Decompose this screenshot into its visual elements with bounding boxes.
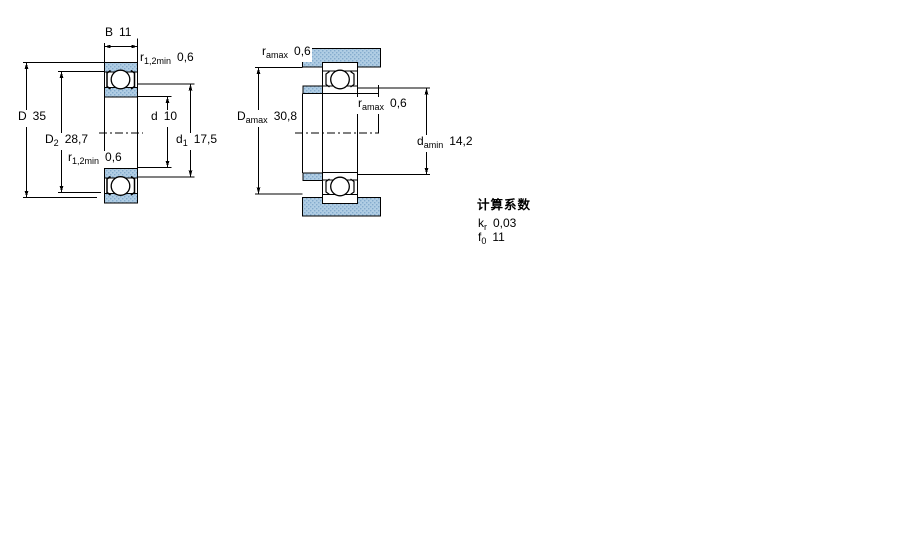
dim-symbol: d	[176, 132, 183, 146]
label-D2: D228,7	[44, 133, 89, 150]
dim-subscript: amin	[424, 140, 444, 150]
dim-symbol: d	[417, 134, 424, 148]
dim-value: 11	[119, 25, 131, 39]
dim-value: 35	[33, 109, 46, 123]
dim-subscript: 1	[183, 138, 188, 148]
dim-value: 30,8	[274, 109, 297, 123]
label-r12min-inner: r1,2min0,6	[67, 151, 123, 168]
label-outer-diameter-D: D35	[17, 110, 47, 127]
factor-subscript: 0	[481, 236, 486, 246]
factor-f0: f011	[477, 231, 506, 248]
dim-subscript: 2	[54, 138, 59, 148]
dim-symbol: D	[45, 132, 54, 146]
dim-symbol: D	[237, 109, 246, 123]
dim-subscript: 1,2min	[72, 156, 99, 166]
label-ramax-middle: ramax0,6	[357, 97, 408, 114]
dim-value: 0,6	[105, 150, 122, 164]
dim-value: 0,6	[177, 50, 194, 64]
label-r12min-top: r1,2min0,6	[139, 51, 195, 68]
dim-subscript: 1,2min	[144, 56, 171, 66]
label-bore-d: d10	[150, 110, 178, 127]
dim-value: 14,2	[449, 134, 472, 148]
label-damin: damin14,2	[416, 135, 474, 152]
label-ramax-top: ramax0,6	[261, 45, 312, 62]
label-width-B: B11	[104, 26, 132, 43]
dim-subscript: amax	[362, 102, 384, 112]
factor-value: 11	[492, 230, 504, 244]
dim-subscript: amax	[246, 115, 268, 125]
dim-value: 28,7	[65, 132, 88, 146]
dim-value: 17,5	[194, 132, 217, 146]
bearing-drawing-canvas: B11 r1,2min0,6 D35 D228,7 d10 d117,5 r1,…	[0, 0, 900, 560]
right-bearing-drawing	[255, 49, 430, 217]
dim-value: 10	[164, 109, 177, 123]
calculation-factors-title: 计算系数	[477, 194, 531, 213]
dim-value: 0,6	[294, 44, 311, 58]
technical-drawing	[0, 0, 900, 560]
dim-symbol: d	[151, 109, 158, 123]
dim-symbol: D	[18, 109, 27, 123]
dim-subscript: amax	[266, 50, 288, 60]
dim-value: 0,6	[390, 96, 407, 110]
factor-value: 0,03	[493, 216, 516, 230]
label-Damax: Damax30,8	[236, 110, 298, 127]
dim-symbol: B	[105, 25, 113, 39]
label-d1: d117,5	[175, 133, 218, 150]
